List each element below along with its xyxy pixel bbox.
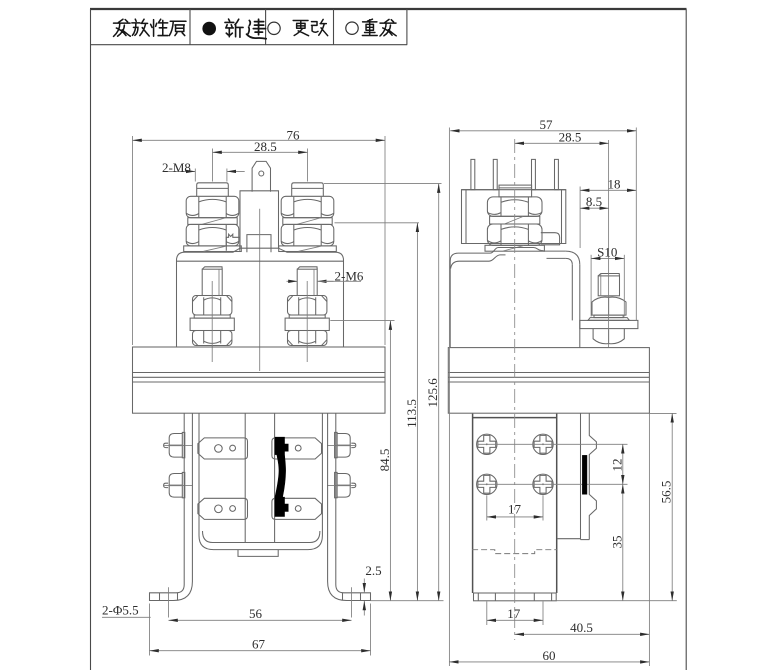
svg-text:18: 18 — [608, 176, 621, 191]
svg-text:56: 56 — [249, 606, 263, 621]
svg-text:125.6: 125.6 — [425, 378, 440, 408]
svg-text:2.5: 2.5 — [365, 563, 381, 578]
svg-text:2-M6: 2-M6 — [335, 268, 364, 283]
svg-text:2-M8: 2-M8 — [162, 160, 191, 175]
svg-text:28.5: 28.5 — [254, 139, 277, 154]
svg-text:76: 76 — [287, 127, 301, 142]
svg-text:17: 17 — [507, 606, 521, 621]
svg-text:S10: S10 — [597, 244, 617, 259]
svg-text:40.5: 40.5 — [570, 620, 593, 635]
svg-text:113.5: 113.5 — [404, 399, 419, 428]
svg-text:28.5: 28.5 — [559, 130, 582, 145]
svg-text:2-Φ5.5: 2-Φ5.5 — [102, 603, 139, 618]
svg-text:17: 17 — [508, 502, 522, 517]
svg-text:67: 67 — [252, 637, 266, 652]
svg-text:8.5: 8.5 — [586, 194, 602, 209]
svg-text:60: 60 — [543, 648, 556, 663]
svg-text:56.5: 56.5 — [659, 481, 674, 504]
svg-text:57: 57 — [540, 117, 554, 132]
svg-text:35: 35 — [609, 536, 624, 549]
svg-text:12: 12 — [609, 459, 624, 472]
svg-text:84.5: 84.5 — [377, 449, 392, 472]
